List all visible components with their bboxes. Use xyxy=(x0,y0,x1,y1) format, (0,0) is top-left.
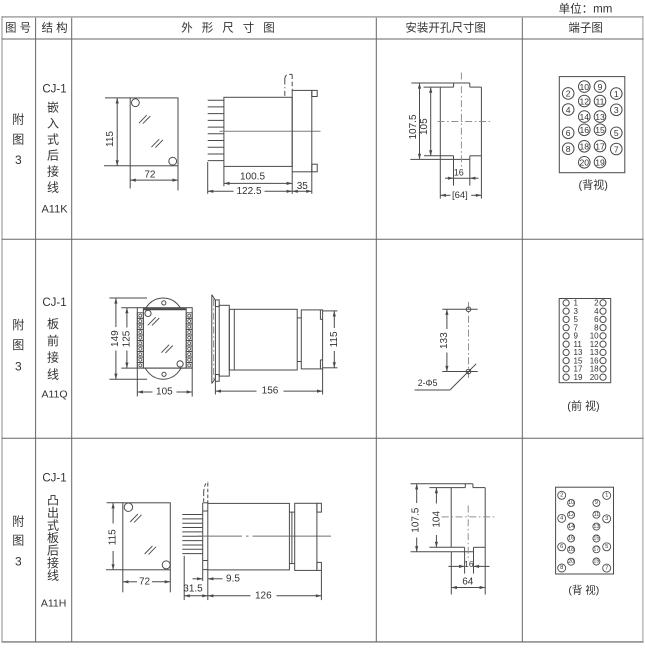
svg-text:115: 115 xyxy=(329,331,340,347)
svg-text:后: 后 xyxy=(47,148,59,162)
svg-text:接: 接 xyxy=(47,350,59,365)
svg-text:17: 17 xyxy=(595,141,605,151)
svg-text:17: 17 xyxy=(593,547,599,553)
svg-text:19: 19 xyxy=(593,559,599,565)
svg-text:20: 20 xyxy=(580,158,590,168)
svg-text:线: 线 xyxy=(47,568,59,582)
svg-text:107.5: 107.5 xyxy=(408,114,419,139)
svg-text:9: 9 xyxy=(598,82,603,92)
svg-text:105: 105 xyxy=(156,387,173,398)
svg-text:(背 视): (背 视) xyxy=(568,584,599,597)
svg-text:19: 19 xyxy=(574,373,583,382)
svg-text:线: 线 xyxy=(47,367,59,381)
svg-text:单位：mm: 单位：mm xyxy=(559,1,613,15)
svg-text:35: 35 xyxy=(297,181,309,192)
svg-text:122.5: 122.5 xyxy=(236,186,261,197)
svg-text:式: 式 xyxy=(47,132,59,146)
svg-text:100.5: 100.5 xyxy=(240,172,265,183)
svg-text:12: 12 xyxy=(568,512,574,518)
svg-text:A11Q: A11Q xyxy=(41,389,67,401)
svg-text:125: 125 xyxy=(121,330,132,347)
svg-text:64: 64 xyxy=(462,576,474,587)
svg-text:图: 图 xyxy=(12,133,24,147)
svg-text:5: 5 xyxy=(614,128,619,138)
svg-text:(背视): (背视) xyxy=(579,178,608,192)
svg-text:2-Φ5: 2-Φ5 xyxy=(418,378,438,388)
svg-text:14: 14 xyxy=(568,524,574,530)
svg-text:CJ-1: CJ-1 xyxy=(42,297,66,309)
svg-text:2: 2 xyxy=(566,89,571,99)
svg-text:9.5: 9.5 xyxy=(226,573,240,584)
svg-text:附: 附 xyxy=(12,112,24,126)
svg-text:CJ-1: CJ-1 xyxy=(42,473,66,485)
svg-text:149: 149 xyxy=(110,330,121,347)
svg-text:附: 附 xyxy=(12,514,24,528)
svg-text:A11H: A11H xyxy=(41,597,67,609)
svg-text:115: 115 xyxy=(107,529,118,545)
svg-text:18: 18 xyxy=(568,547,574,553)
svg-text:接: 接 xyxy=(47,163,59,178)
svg-text:CJ-1: CJ-1 xyxy=(42,83,66,95)
svg-text:1: 1 xyxy=(614,89,619,99)
svg-text:16: 16 xyxy=(568,536,574,542)
svg-text:9: 9 xyxy=(595,500,598,506)
svg-text:3: 3 xyxy=(15,153,22,167)
svg-text:115: 115 xyxy=(105,131,116,147)
svg-text:16: 16 xyxy=(464,559,474,569)
svg-text:图: 图 xyxy=(12,534,24,548)
svg-text:8: 8 xyxy=(566,144,571,154)
svg-text:14: 14 xyxy=(580,112,590,122)
svg-text:15: 15 xyxy=(595,125,605,135)
svg-text:13: 13 xyxy=(593,524,599,530)
svg-text:嵌: 嵌 xyxy=(47,100,59,114)
svg-text:12: 12 xyxy=(580,96,590,106)
svg-text:图 号: 图 号 xyxy=(5,22,31,35)
svg-text:19: 19 xyxy=(595,157,605,167)
svg-text:外形尺寸图: 外形尺寸图 xyxy=(181,21,284,35)
svg-text:图: 图 xyxy=(12,338,24,352)
svg-text:105: 105 xyxy=(419,118,430,135)
svg-text:(前 视): (前 视) xyxy=(567,398,599,412)
svg-text:[64]: [64] xyxy=(452,190,468,201)
svg-text:8: 8 xyxy=(560,565,563,571)
svg-text:3: 3 xyxy=(614,105,619,115)
svg-text:安装开孔尺寸图: 安装开孔尺寸图 xyxy=(405,21,486,35)
svg-text:2: 2 xyxy=(560,493,563,499)
svg-text:16: 16 xyxy=(580,125,590,135)
svg-text:16: 16 xyxy=(454,168,464,178)
svg-text:4: 4 xyxy=(566,105,571,115)
svg-text:18: 18 xyxy=(580,142,590,152)
svg-text:133: 133 xyxy=(439,332,450,349)
svg-text:6: 6 xyxy=(560,544,563,550)
svg-text:6: 6 xyxy=(566,128,571,138)
svg-text:板: 板 xyxy=(47,317,59,331)
svg-text:端子图: 端子图 xyxy=(568,22,603,35)
svg-text:20: 20 xyxy=(590,373,599,382)
svg-text:5: 5 xyxy=(605,544,608,550)
svg-text:72: 72 xyxy=(144,169,156,180)
svg-text:15: 15 xyxy=(593,536,599,542)
svg-text:A11K: A11K xyxy=(41,204,68,216)
svg-text:1: 1 xyxy=(605,493,608,499)
svg-text:前: 前 xyxy=(47,333,59,348)
svg-text:10: 10 xyxy=(580,82,590,92)
svg-text:31.5: 31.5 xyxy=(183,584,203,595)
svg-text:附: 附 xyxy=(12,318,24,332)
svg-text:3: 3 xyxy=(15,555,22,569)
svg-text:20: 20 xyxy=(568,559,574,565)
svg-text:156: 156 xyxy=(262,386,279,397)
svg-text:11: 11 xyxy=(594,512,600,518)
svg-text:7: 7 xyxy=(605,565,608,571)
svg-text:126: 126 xyxy=(255,590,272,601)
svg-text:3: 3 xyxy=(605,516,608,522)
svg-text:3: 3 xyxy=(15,360,22,374)
svg-text:线: 线 xyxy=(47,180,59,194)
svg-text:13: 13 xyxy=(595,112,605,122)
svg-text:7: 7 xyxy=(614,144,619,154)
svg-text:11: 11 xyxy=(596,96,605,106)
svg-text:结 构: 结 构 xyxy=(41,21,67,35)
svg-text:104: 104 xyxy=(431,511,442,528)
svg-text:107.5: 107.5 xyxy=(411,507,422,532)
svg-text:入: 入 xyxy=(47,116,59,130)
svg-text:72: 72 xyxy=(139,576,151,587)
svg-text:10: 10 xyxy=(568,500,574,506)
